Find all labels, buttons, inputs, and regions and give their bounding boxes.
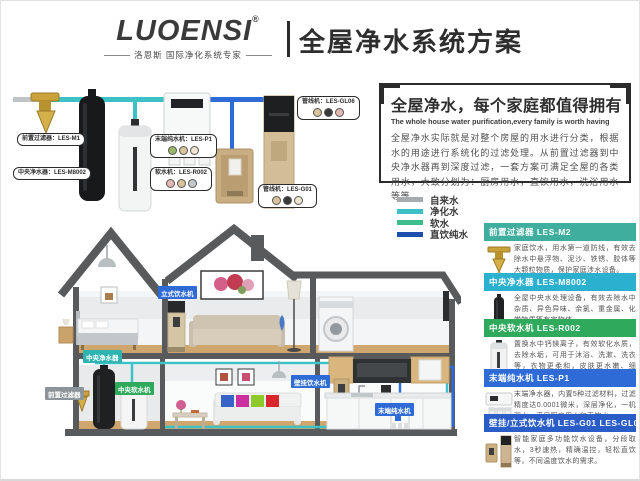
usage-photos xyxy=(155,179,207,188)
tagline-text: 洛恩斯 国际净化系统专家 xyxy=(134,49,242,61)
product-header: 中央净水器 LES-M8002 xyxy=(484,273,636,291)
intro-body: 全屋净水实际就是对整个房屋的用水进行分类，根据水的用途进行系统化的过滤处理。从前… xyxy=(391,131,619,204)
bubble-text: 中央净水器：LES-M8002 xyxy=(18,170,86,176)
label-bubble-central-purifier: 中央净水器：LES-M8002 xyxy=(13,167,91,180)
page-title: 全屋净水系统方案 xyxy=(299,22,523,59)
purified-water-line xyxy=(397,209,423,214)
device-tag-standing-dispenser: 立式饮水机 xyxy=(158,286,197,299)
product-header: 壁挂/立式饮水机 LES-G01 LES-GL06 xyxy=(484,414,636,432)
usage-photo xyxy=(190,146,199,155)
label-bubble-gl06: 管线机：LES-GL06 xyxy=(297,96,360,120)
header-divider xyxy=(287,21,290,57)
usage-photo xyxy=(335,108,344,117)
bubble-text: 管线机：LES-G01 xyxy=(263,187,312,193)
product-desc: 智能家庭多功能饮水设备，分段取水，3秒速热，精确温控，轻松直饮等，不同温度饮水的… xyxy=(514,435,636,469)
brand-name: LUOENSI® xyxy=(93,15,283,46)
registered-trademark-icon: ® xyxy=(252,14,260,24)
device-tag-softener: 中央软水机 xyxy=(115,382,154,395)
product-card-g01-gl06: 壁挂/立式饮水机 LES-G01 LES-GL06 智能家庭多功能饮水设备，分段… xyxy=(484,414,636,469)
usage-photo xyxy=(294,196,303,205)
usage-photo xyxy=(166,179,175,188)
product-header: 末端纯水机 LES-P1 xyxy=(484,369,636,387)
usage-photos xyxy=(155,146,212,155)
brand-tagline: 洛恩斯 国际净化系统专家 xyxy=(93,49,283,61)
bubble-text: 软水机：LES-R002 xyxy=(155,170,207,176)
usage-photo xyxy=(179,146,188,155)
tagline-rule-right xyxy=(246,55,272,56)
dispensers-icon xyxy=(484,435,514,469)
usage-photo xyxy=(283,196,292,205)
label-bubble-ro: 末端纯水机：LES-P1 xyxy=(150,134,217,158)
usage-photo xyxy=(313,108,322,117)
intro-box: 全屋净水，每个家庭都值得拥有 The whole house water pur… xyxy=(379,83,631,183)
product-card-m2: 前置过滤器 LES-M2 家庭饮水，用水第一道防线，有效去除水中悬浮物、泥沙、铁… xyxy=(484,223,636,278)
usage-photo xyxy=(272,196,281,205)
label-bubble-softener: 软水机：LES-R002 xyxy=(150,167,212,191)
device-tag-ro-purifier: 末端纯水机 xyxy=(375,403,414,416)
kitchen-furniture xyxy=(325,357,451,429)
tagline-rule-left xyxy=(104,55,130,56)
device-tag-pre-filter: 前置过滤器 xyxy=(45,387,84,400)
usage-photo xyxy=(168,146,177,155)
usage-photos xyxy=(263,196,312,205)
bubble-text: 管线机：LES-GL06 xyxy=(302,99,355,105)
softener-illustration xyxy=(119,119,151,211)
tap-water-line xyxy=(397,197,423,202)
corner-bracket xyxy=(610,83,631,104)
bubble-text: 末端纯水机：LES-P1 xyxy=(155,137,212,143)
corner-bracket xyxy=(379,83,400,104)
label-bubble-g01: 管线机：LES-G01 xyxy=(258,184,317,208)
device-tag-wall-dispenser: 壁挂饮水机 xyxy=(291,375,330,388)
intro-subtitle: The whole house water purification,every… xyxy=(391,117,619,126)
central-purifier-illustration xyxy=(79,89,105,201)
device-tag-central-purifier: 中央净水器 xyxy=(83,350,122,363)
bubble-text: 前置过滤器：LES-M1 xyxy=(22,136,80,142)
wall-dispenser-illustration xyxy=(216,149,253,203)
poster: LUOENSI® 洛恩斯 国际净化系统专家 全屋净水系统方案 xyxy=(0,0,640,481)
intro-title: 全屋净水，每个家庭都值得拥有 xyxy=(391,92,619,116)
usage-photo xyxy=(324,108,333,117)
brand-logo: LUOENSI® 洛恩斯 国际净化系统专家 xyxy=(93,15,283,61)
brand-text: LUOENSI xyxy=(116,15,252,47)
label-bubble-prefilter: 前置过滤器：LES-M1 xyxy=(17,133,85,146)
usage-photo xyxy=(177,179,186,188)
usage-photos xyxy=(302,108,355,117)
product-header: 前置过滤器 LES-M2 xyxy=(484,223,636,241)
usage-photo xyxy=(188,179,197,188)
product-header: 中央软水机 LES-R002 xyxy=(484,319,636,337)
